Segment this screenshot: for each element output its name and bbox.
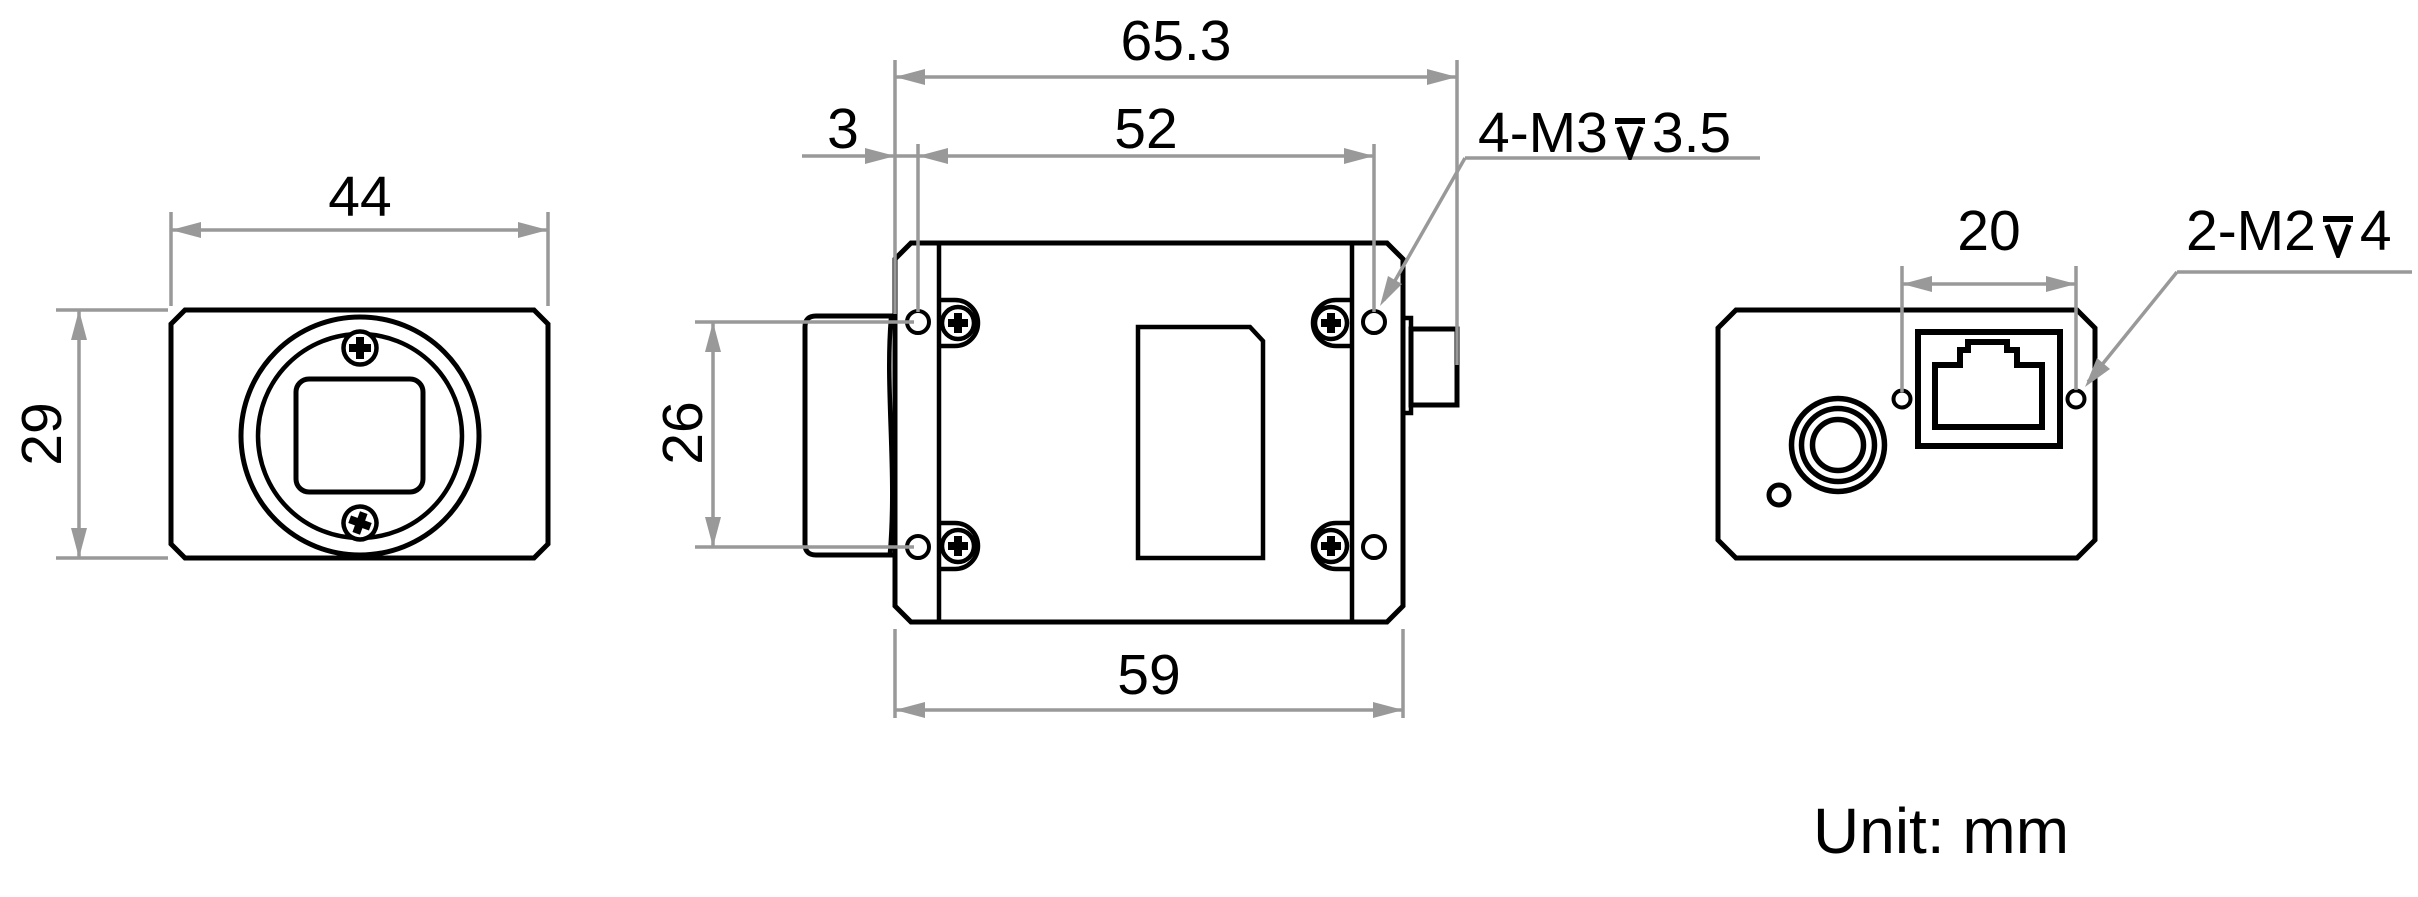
dim-rear-hole-span-value: 20 — [1957, 199, 2020, 263]
dim-rear-hole-span: 20 — [1902, 199, 2076, 392]
dim-front-hole-offset-value: 3 — [827, 97, 859, 161]
mounting-hole — [1894, 391, 1911, 408]
dim-front-height: 29 — [10, 310, 168, 558]
dim-top-hole-offset: 3 — [802, 97, 1374, 164]
lens-barrel — [805, 316, 895, 555]
mounting-hole — [1363, 536, 1385, 558]
camera-dimension-drawing: 44 29 — [0, 0, 2418, 897]
mounting-hole — [1363, 311, 1385, 333]
rear-body-outline — [1718, 310, 2095, 558]
phillips-screw-icon — [344, 332, 377, 365]
phillips-screw-icon — [942, 530, 974, 562]
dim-overall-length-value: 65.3 — [1121, 9, 1232, 73]
phillips-screw-icon — [942, 307, 974, 339]
lens-barrel-break-line — [889, 318, 892, 553]
rj45-jack-opening — [1935, 342, 2042, 427]
top-view — [805, 243, 1457, 622]
callout-leader-m2 — [2085, 272, 2412, 387]
callout-leader-m3 — [1380, 158, 1760, 306]
depth-symbol-icon — [2320, 210, 2356, 258]
dim-front-height-value: 29 — [10, 402, 74, 465]
thread-callout-2-m2: 2-M2 4 — [2186, 198, 2392, 264]
thread-callout-prefix: 4-M3 — [1478, 100, 1608, 166]
thread-callout-depth: 4 — [2360, 198, 2392, 264]
drawing-canvas: 44 29 — [0, 0, 2418, 897]
io-connector-body — [1411, 329, 1457, 405]
rear-view — [1718, 310, 2095, 558]
front-view — [171, 310, 548, 558]
dim-front-width-value: 44 — [328, 165, 391, 229]
mounting-hole — [2068, 391, 2085, 408]
phillips-screw-icon — [1315, 307, 1347, 339]
thread-callout-depth: 3.5 — [1652, 100, 1731, 166]
dim-top-body-length: 59 — [895, 629, 1403, 718]
thread-callout-4-m3: 4-M3 3.5 — [1478, 100, 1731, 166]
sensor-window — [296, 379, 423, 492]
led-indicator — [1769, 485, 1789, 505]
power-connector — [1792, 399, 1885, 492]
dim-hole-span-width-value: 26 — [651, 401, 715, 464]
unit-note: Unit: mm — [1813, 795, 2069, 867]
dim-top-hole-span-width: 26 — [651, 322, 914, 547]
thread-callout-prefix: 2-M2 — [2186, 198, 2316, 264]
phillips-screw-icon — [1315, 530, 1347, 562]
dim-front-width: 44 — [171, 165, 548, 306]
dim-top-hole-span-length: 52 — [918, 97, 1374, 312]
label-sticker — [1138, 327, 1263, 558]
dim-body-length-value: 59 — [1117, 643, 1180, 707]
dim-hole-span-length-value: 52 — [1114, 97, 1177, 161]
depth-symbol-icon — [1612, 112, 1648, 160]
